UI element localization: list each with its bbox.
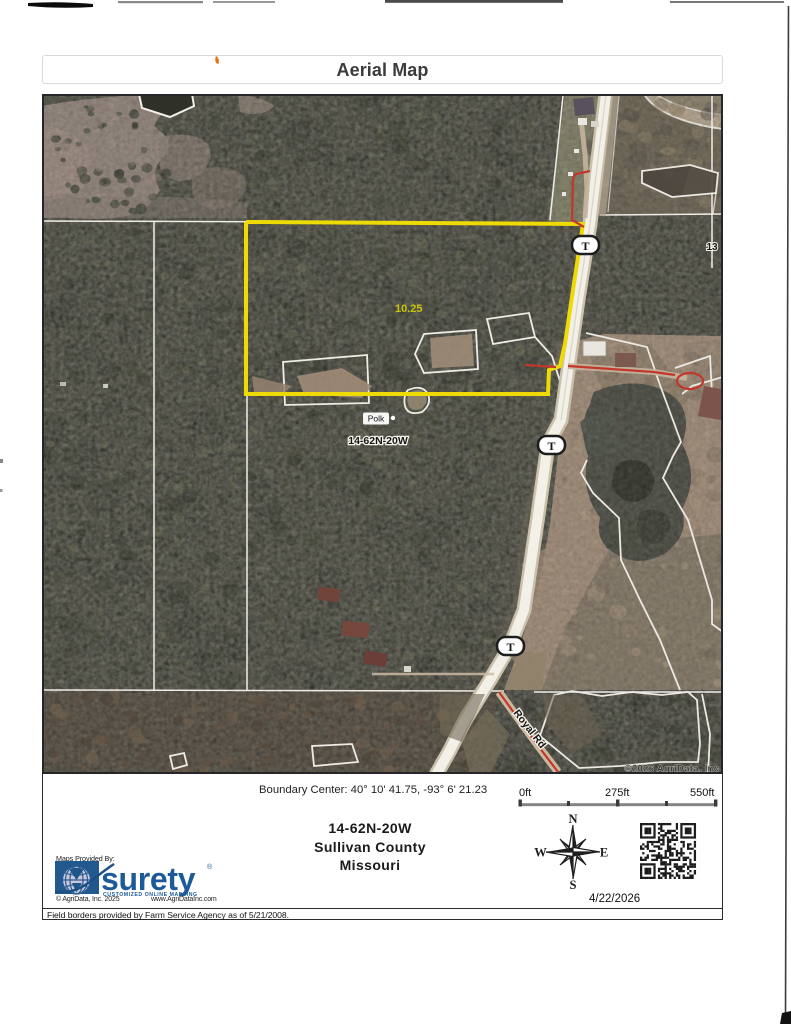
- svg-text:E: E: [600, 846, 608, 860]
- svg-text:W: W: [534, 846, 547, 860]
- svg-text:N: N: [568, 812, 577, 826]
- svg-text:S: S: [570, 878, 577, 892]
- svg-text:®: ®: [207, 863, 213, 871]
